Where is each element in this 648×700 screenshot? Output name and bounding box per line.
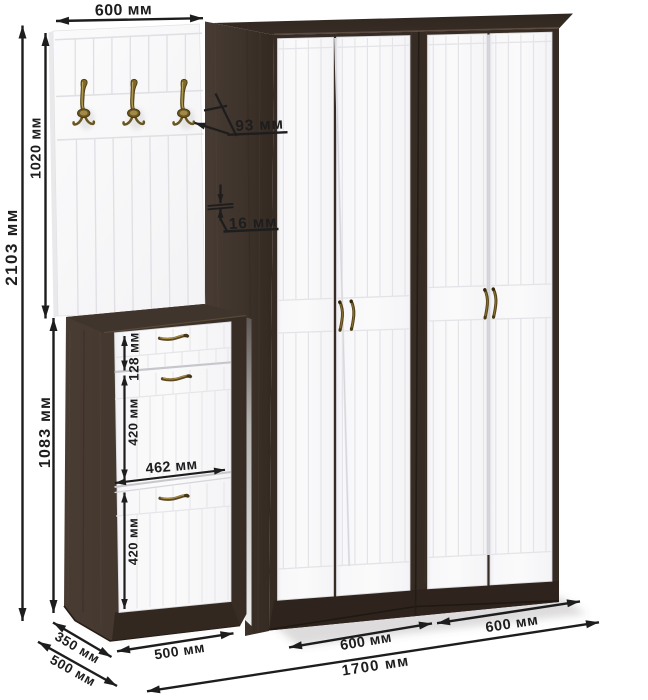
svg-text:1020 мм: 1020 мм xyxy=(29,117,45,179)
svg-text:2103 мм: 2103 мм xyxy=(2,208,21,286)
svg-text:128 мм: 128 мм xyxy=(127,332,142,381)
svg-text:1083 мм: 1083 мм xyxy=(37,396,54,468)
svg-text:93 мм: 93 мм xyxy=(235,115,284,135)
svg-text:420 мм: 420 мм xyxy=(126,398,141,446)
svg-text:600 мм: 600 мм xyxy=(95,1,153,19)
svg-text:420 мм: 420 мм xyxy=(126,518,141,566)
svg-text:16 мм: 16 мм xyxy=(228,213,277,233)
